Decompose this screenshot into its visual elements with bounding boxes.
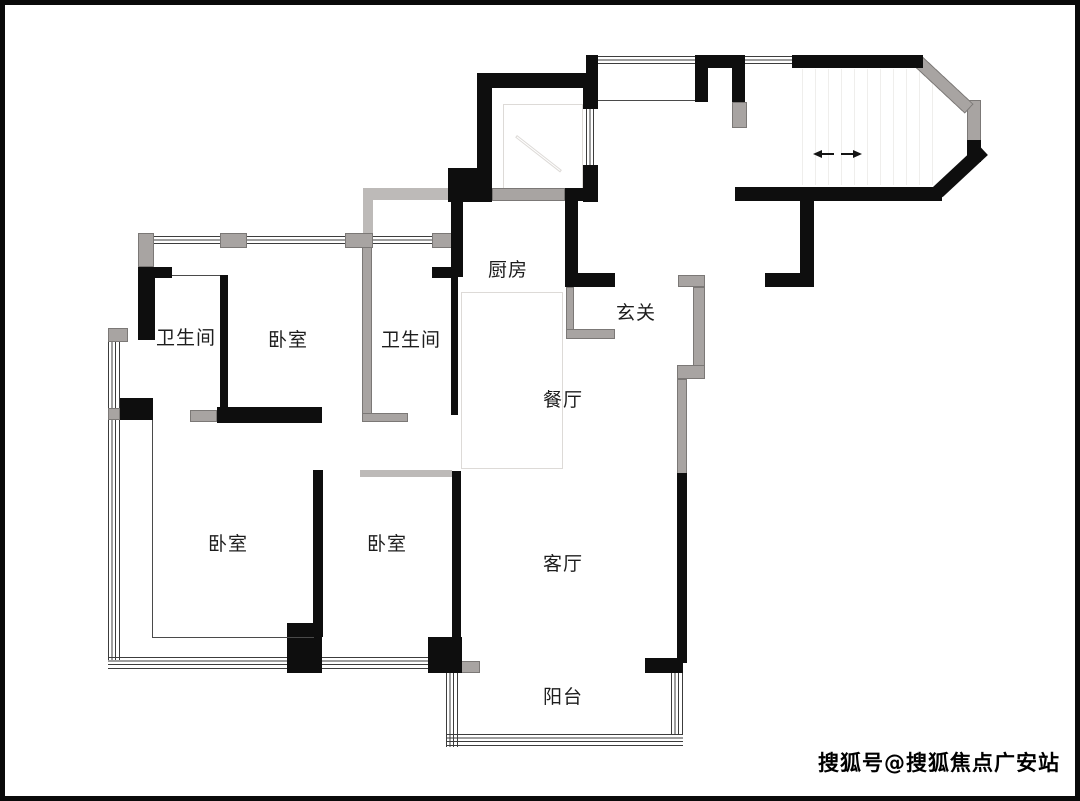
- wall-segment: [120, 398, 153, 420]
- wall-segment: [217, 407, 322, 423]
- hairline-wall: [598, 100, 695, 101]
- room-label-bedroom-1: 卧室: [268, 331, 308, 350]
- light-wall-segment: [360, 470, 452, 477]
- hairline-wall: [152, 420, 153, 638]
- window-band: [122, 657, 287, 670]
- window-band: [446, 734, 683, 747]
- window-band: [598, 56, 695, 67]
- wall-segment: [765, 273, 814, 287]
- wall-segment: [220, 275, 228, 412]
- wall-segment: [792, 55, 923, 68]
- fixture-outline: [503, 104, 583, 194]
- gray-wall-segment: [108, 408, 120, 420]
- wall-segment: [451, 277, 458, 415]
- wall-segment: [152, 267, 172, 278]
- room-label-dining: 餐厅: [543, 391, 583, 410]
- wall-segment: [565, 188, 598, 201]
- gray-wall-segment: [492, 188, 565, 201]
- gray-wall-segment: [190, 410, 217, 422]
- room-label-bathroom-2: 卫生间: [381, 331, 441, 350]
- hairline-wall: [152, 637, 314, 638]
- wall-segment: [287, 623, 322, 673]
- window-band: [154, 236, 220, 247]
- gray-wall-segment: [677, 365, 705, 379]
- watermark: 搜狐号@搜狐焦点广安站: [818, 747, 1060, 777]
- wall-segment: [445, 658, 458, 673]
- gray-wall-segment: [345, 233, 373, 248]
- room-label-bathroom-1: 卫生间: [156, 329, 216, 348]
- room-label-balcony: 阳台: [543, 688, 583, 707]
- gray-wall-segment: [460, 661, 480, 673]
- wall-segment: [448, 168, 482, 202]
- window-band: [586, 109, 596, 165]
- wall-segment: [800, 201, 814, 275]
- wall-layer: [5, 5, 1075, 796]
- window-band: [745, 56, 792, 67]
- wall-segment: [477, 73, 598, 88]
- stair-arrow-right-icon: [853, 150, 862, 158]
- stair-arrow-left-tail: [822, 153, 834, 155]
- gray-wall-segment: [108, 328, 128, 342]
- window-band: [247, 236, 345, 247]
- gray-wall-segment: [566, 329, 615, 339]
- stair-treads: [802, 69, 940, 185]
- gray-wall-segment: [220, 233, 247, 248]
- wall-segment: [645, 658, 683, 673]
- wall-segment: [432, 267, 452, 278]
- wall-segment: [583, 73, 598, 109]
- room-label-living: 客厅: [543, 555, 583, 574]
- window-band: [671, 673, 683, 734]
- gray-wall-segment: [138, 233, 154, 267]
- hairline-wall: [172, 275, 220, 276]
- gray-wall-segment: [693, 287, 705, 371]
- wall-segment: [565, 201, 578, 275]
- window-band: [108, 342, 120, 660]
- fixture-outline: [461, 292, 563, 469]
- gray-wall-segment: [362, 413, 408, 422]
- wall-segment: [452, 471, 461, 637]
- window-band: [446, 673, 458, 747]
- gray-wall-segment: [362, 247, 372, 422]
- room-label-foyer: 玄关: [616, 304, 656, 323]
- room-label-bedroom-2: 卧室: [208, 535, 248, 554]
- stair-arrow-left-icon: [813, 150, 822, 158]
- gray-wall-segment: [678, 275, 705, 287]
- wall-segment: [735, 187, 942, 201]
- light-wall-segment: [363, 188, 452, 200]
- wall-segment: [586, 55, 598, 75]
- wall-segment: [451, 200, 463, 277]
- window-band: [373, 236, 432, 247]
- wall-segment: [313, 470, 323, 637]
- gray-wall-segment: [732, 102, 747, 128]
- stair-arrow-right-tail: [841, 153, 853, 155]
- wall-segment: [732, 55, 745, 102]
- room-label-bedroom-3: 卧室: [367, 535, 407, 554]
- room-label-kitchen: 厨房: [488, 261, 528, 280]
- window-band: [322, 657, 428, 670]
- floor-plan: 厨房 玄关 卫生间 卧室 卫生间 餐厅 客厅 卧室 卧室 阳台 搜狐号@搜狐焦点…: [0, 0, 1080, 801]
- gray-wall-segment: [677, 379, 687, 475]
- wall-segment: [677, 473, 687, 663]
- wall-segment: [565, 273, 615, 287]
- gray-wall-segment: [432, 233, 452, 248]
